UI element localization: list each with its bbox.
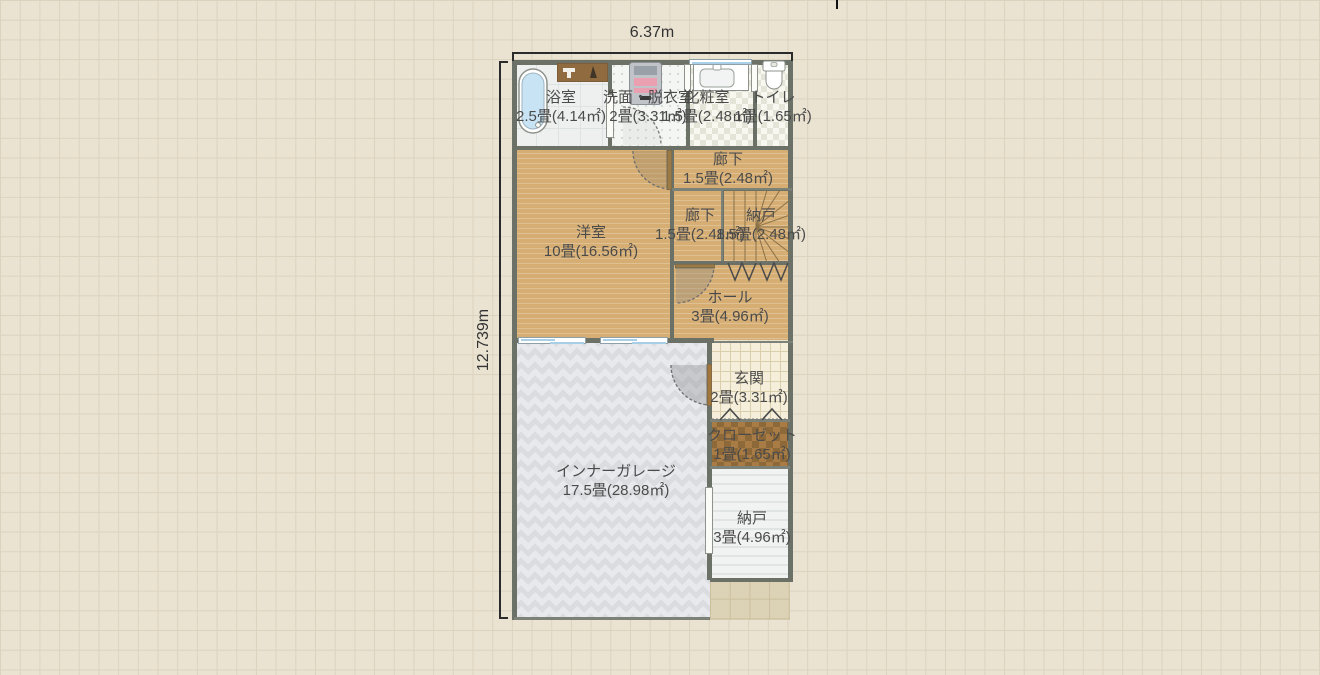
swing-door-icon[interactable] (622, 106, 662, 146)
room-storage-lower[interactable] (710, 467, 790, 579)
dimension-tick (499, 617, 508, 619)
bath-counter-icon[interactable] (557, 63, 608, 82)
porch-area[interactable] (710, 579, 790, 620)
bathtub-icon[interactable] (518, 68, 548, 134)
window-icon[interactable] (600, 337, 668, 344)
sliding-door-icon[interactable] (705, 487, 713, 554)
window-icon[interactable] (518, 337, 586, 344)
swing-door-icon[interactable] (632, 150, 672, 190)
bifold-door-icon[interactable] (712, 406, 790, 422)
room-closet[interactable] (710, 420, 790, 467)
swing-door-icon[interactable] (675, 264, 715, 304)
door-slab-icon[interactable] (751, 64, 758, 92)
text-cursor-artifact (836, 0, 838, 9)
garage-opening-line (514, 617, 710, 620)
dimension-height-label: 12.739m (475, 309, 493, 371)
room-corridor-upper[interactable] (672, 148, 790, 190)
dimension-tick (499, 61, 508, 63)
room-corridor-lower[interactable] (672, 190, 723, 263)
swing-door-icon[interactable] (670, 364, 712, 406)
dimension-line-top (512, 52, 793, 54)
floorplan-canvas[interactable]: 浴室2.5畳(4.14㎡) 洗面・脱衣室2畳(3.31㎡) 化粧室1.5畳(2.… (0, 0, 1320, 675)
bifold-door-icon[interactable] (726, 260, 790, 284)
window-icon[interactable] (689, 59, 752, 65)
toilet-icon[interactable] (760, 60, 788, 93)
wall (710, 578, 793, 582)
door-slab-icon[interactable] (684, 64, 691, 92)
dimension-tick (512, 52, 514, 61)
wall (788, 60, 793, 582)
dimension-tick (791, 52, 793, 61)
vanity-icon[interactable] (629, 62, 662, 105)
stairs-icon[interactable] (723, 190, 790, 263)
entrance-step-line (714, 341, 793, 343)
washbasin-icon[interactable] (693, 63, 749, 91)
dimension-width-label: 6.37m (630, 24, 674, 42)
wall (710, 466, 790, 469)
dimension-line-left (499, 61, 501, 619)
bath-door-icon[interactable] (606, 94, 614, 138)
